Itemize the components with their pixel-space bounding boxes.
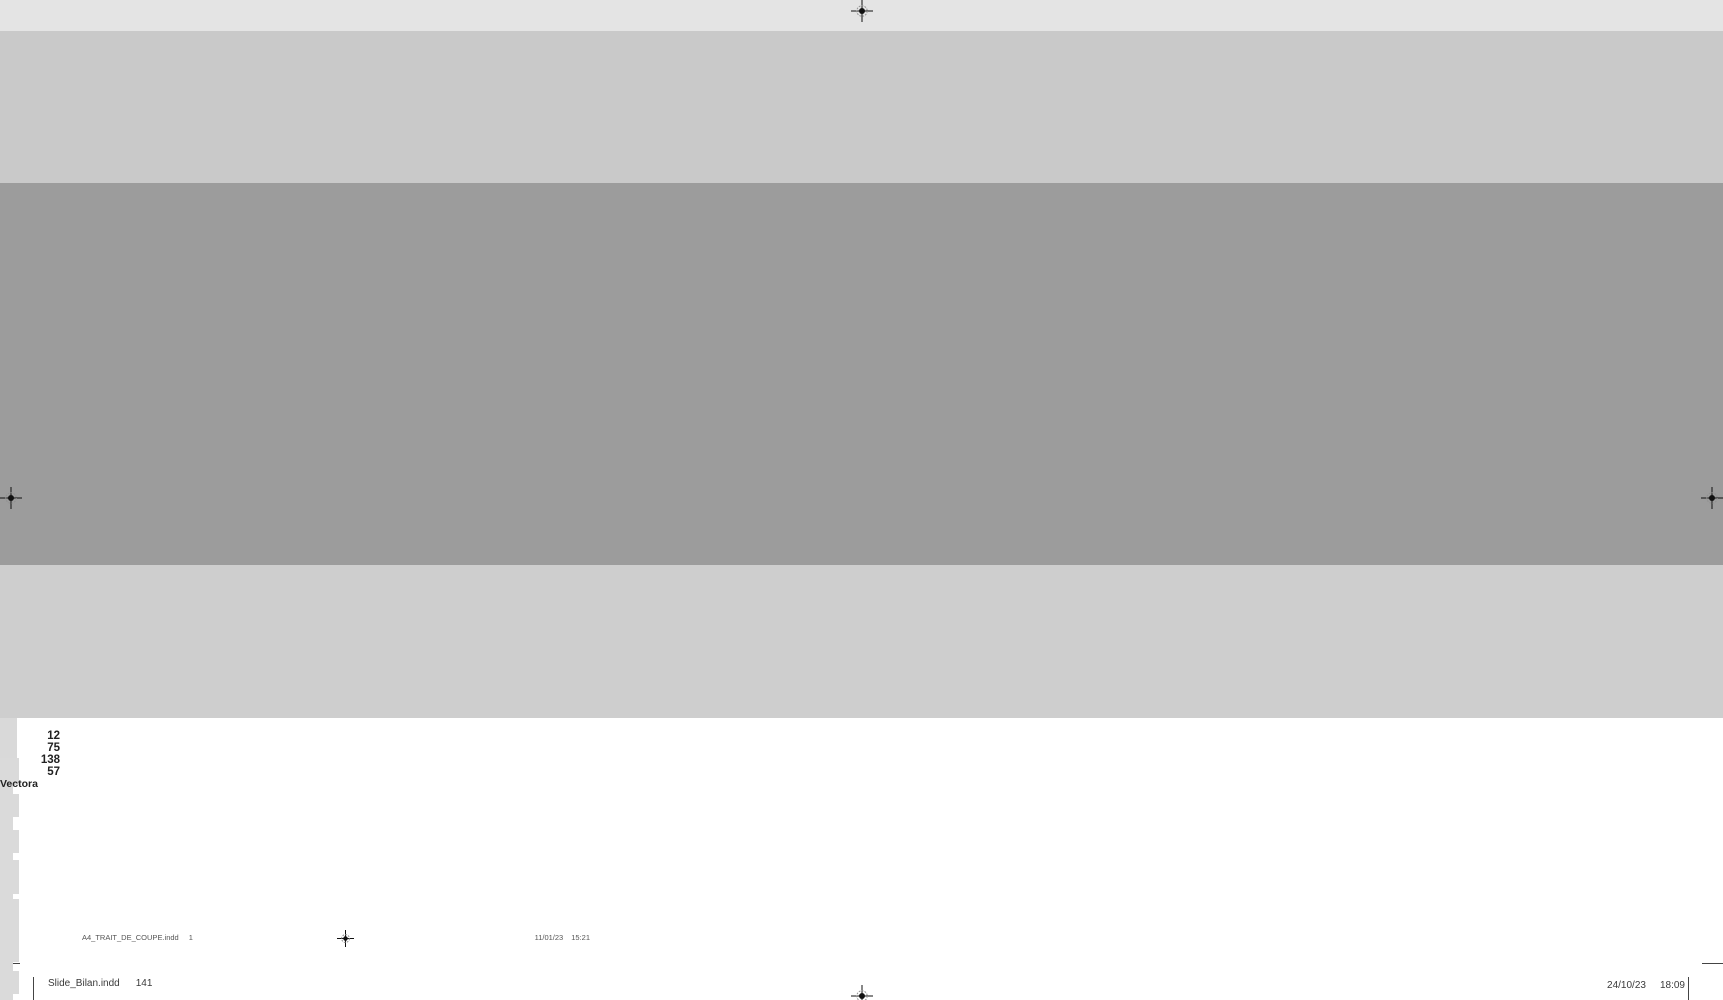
spread-file-name: Slide_Bilan.indd — [48, 978, 120, 989]
diagram-footer-right: 11/01/2315:21 — [480, 933, 590, 942]
segment-value-label: 138 — [0, 754, 60, 766]
spread-footer-left: Slide_Bilan.indd141 — [48, 978, 152, 989]
stacked-bar — [0, 790, 144, 1000]
spread-page-number: 141 — [136, 978, 153, 989]
diagram-page-number: 1 — [189, 933, 193, 942]
diagram-file-name: A4_TRAIT_DE_COUPE.indd — [82, 933, 179, 942]
segment-value-label: 12 — [0, 730, 60, 742]
segment-value-label: 75 — [0, 742, 60, 754]
registration-mark — [0, 487, 22, 509]
spread-footer-right: 24/10/2318:09 — [1500, 980, 1685, 991]
chart-title: Vectora — [0, 778, 1723, 790]
comparison-charts: THM127513857Vectora153917454meta+1260150… — [0, 0, 1723, 1000]
diagram-time: 15:21 — [571, 933, 590, 942]
spread-time: 18:09 — [1660, 980, 1685, 991]
registration-mark — [851, 985, 873, 1000]
registration-mark — [1701, 487, 1723, 509]
print-spread: Bilan intermédiaire 29.06.2023 Introduct… — [0, 0, 1723, 1000]
registration-mark — [851, 0, 873, 22]
diagram-footer-left: A4_TRAIT_DE_COUPE.indd1 — [82, 933, 193, 942]
bar-segment — [0, 31, 1723, 184]
diagram-date: 11/01/23 — [535, 933, 564, 942]
segment-value-label: 57 — [0, 766, 60, 778]
bar-segment — [0, 565, 1723, 718]
spread-date: 24/10/23 — [1607, 980, 1646, 991]
bar-segment — [0, 183, 1723, 565]
